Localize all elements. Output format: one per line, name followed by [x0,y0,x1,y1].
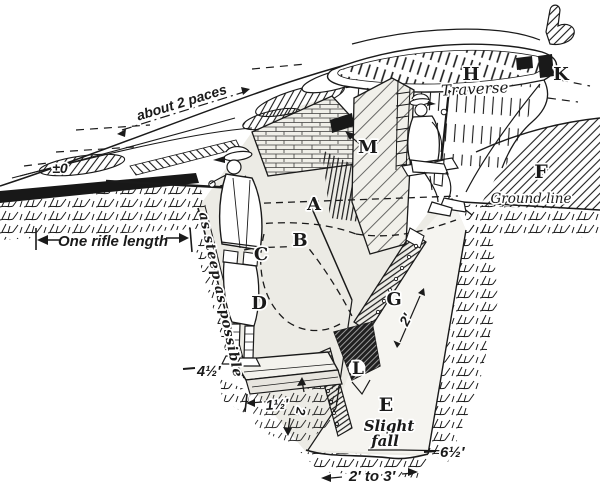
slight-fall-line2: fall [370,432,399,450]
depth-label: 6½′ [440,444,466,461]
label-a: A [306,194,322,215]
torso [220,174,262,250]
label-d: D [251,293,267,314]
torso [408,116,440,164]
diagram-canvas: about 2 paces One rifle length ±0 as ste… [0,0,600,494]
datum-label: ±0 [52,160,68,176]
floor-width-label: 2′ to 3′ [348,468,397,485]
trench-construction-diagram: about 2 paces One rifle length ±0 as ste… [0,0,600,494]
ground-line-label: Ground line [490,191,571,207]
hand [441,109,447,115]
step-width-label: 1½′ [265,395,290,413]
label-g: G [386,289,401,310]
label-e: E [379,394,393,416]
label-f: F [534,161,548,183]
label-b: B [292,230,307,251]
label-c: C [254,244,268,265]
head [415,104,427,116]
parados-loophole-left [516,56,533,70]
label-l: L [352,359,364,379]
wall-height-label: 4½′ [196,364,221,380]
label-m: M [358,137,378,158]
label-k: K [553,64,570,85]
head [227,160,241,174]
one-rifle-length-label: One rifle length [58,233,168,250]
label-h: H [462,64,479,85]
parados-loophole-right [538,54,554,78]
